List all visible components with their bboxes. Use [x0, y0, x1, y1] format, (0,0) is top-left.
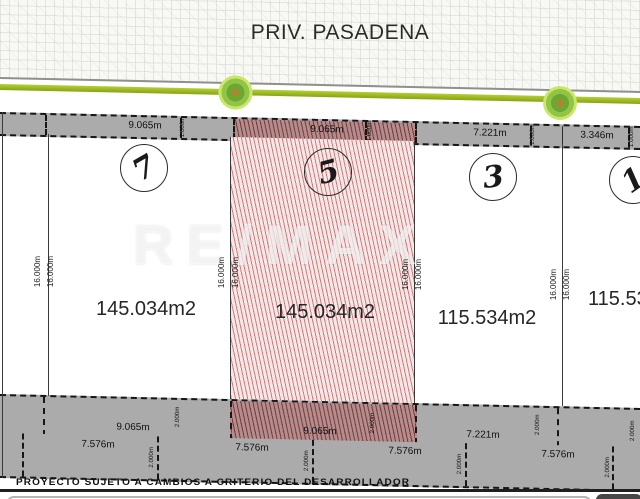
rear-setback-label: 2.000m: [535, 414, 541, 435]
tree-icon: [217, 74, 254, 111]
scroll-handle[interactable]: [596, 494, 640, 499]
front-width-label: 9.065m: [297, 123, 357, 135]
lot-number: 5: [313, 152, 342, 191]
front-width-label: 3.346m: [567, 129, 627, 141]
bottom-ui-strip: [0, 492, 640, 499]
lot-depth-label: 16.000m: [47, 253, 55, 290]
front-width-label: 9.065m: [115, 120, 175, 132]
lot-depth-label: 16.000m: [218, 254, 226, 291]
lot-number: 1: [614, 160, 640, 201]
rear-setback-label: 2.000m: [605, 457, 611, 478]
lot-area-label: 145.034m2: [255, 301, 395, 324]
street-name: PRIV. PASADENA: [240, 21, 440, 45]
lot-number-badge: 5: [304, 148, 352, 196]
lot-area-label: 145.034m2: [76, 298, 216, 321]
lot-number-badge: 7: [120, 144, 168, 192]
rear-setback-label: 2.000m: [630, 420, 636, 441]
front-gap-label: 1.000m: [180, 116, 186, 137]
lot5-rear-hatch: [230, 401, 417, 444]
lot-number: 7: [126, 148, 162, 189]
lot-area-label: 115.53: [588, 288, 640, 311]
rear-width-label: 7.221m: [453, 429, 513, 441]
lot-number: 3: [481, 159, 505, 196]
rear-setback-label: 2.000m: [149, 447, 155, 468]
lot-number-badge: 1: [609, 156, 640, 204]
rear-setback-label: 2.000m: [370, 413, 376, 434]
lot-number-badge: 3: [469, 153, 517, 201]
lot-depth-label: 16.000m: [232, 254, 240, 291]
lot-depth-label: 16.000m: [563, 266, 571, 303]
rear-width-label: 9.065m: [290, 425, 350, 437]
rear-lower-width-label: 7.576m: [375, 445, 435, 457]
rear-lower-width-label: 7.576m: [68, 438, 128, 450]
lot-depth-label: 16.000m: [402, 256, 410, 293]
front-gap-label: 1.000m: [530, 124, 536, 145]
rear-setback-label: 2.000m: [457, 453, 463, 474]
remax-watermark: RE/MAX: [133, 212, 429, 277]
rear-setback-label: 2.000m: [304, 450, 310, 471]
plan-left-edge: [2, 112, 3, 478]
tree-icon: [543, 86, 577, 120]
front-gap-label: 1.000m: [367, 120, 373, 141]
lot-area-label: 115.534m2: [417, 307, 557, 330]
lot-depth-label: 16.000m: [415, 256, 423, 293]
front-gap-label: 1.000m: [629, 126, 635, 147]
rear-lower-width-label: 7.576m: [222, 442, 282, 454]
rear-width-label: 9.065m: [103, 421, 163, 433]
lot-depth-label: 16.000m: [550, 266, 558, 303]
site-plan: PRIV. PASADENA 9.065m 9.065m 7.221m 3.34…: [0, 0, 640, 499]
front-width-label: 7.221m: [460, 127, 520, 139]
rear-setback-label: 2.000m: [175, 406, 181, 427]
disclaimer-text: PROYECTO SUJETO A CAMBIOS A CRITERIO DEL…: [16, 477, 410, 487]
rear-lower-width-label: 7.576m: [528, 449, 588, 461]
lot-depth-label: 16.000m: [34, 253, 42, 290]
